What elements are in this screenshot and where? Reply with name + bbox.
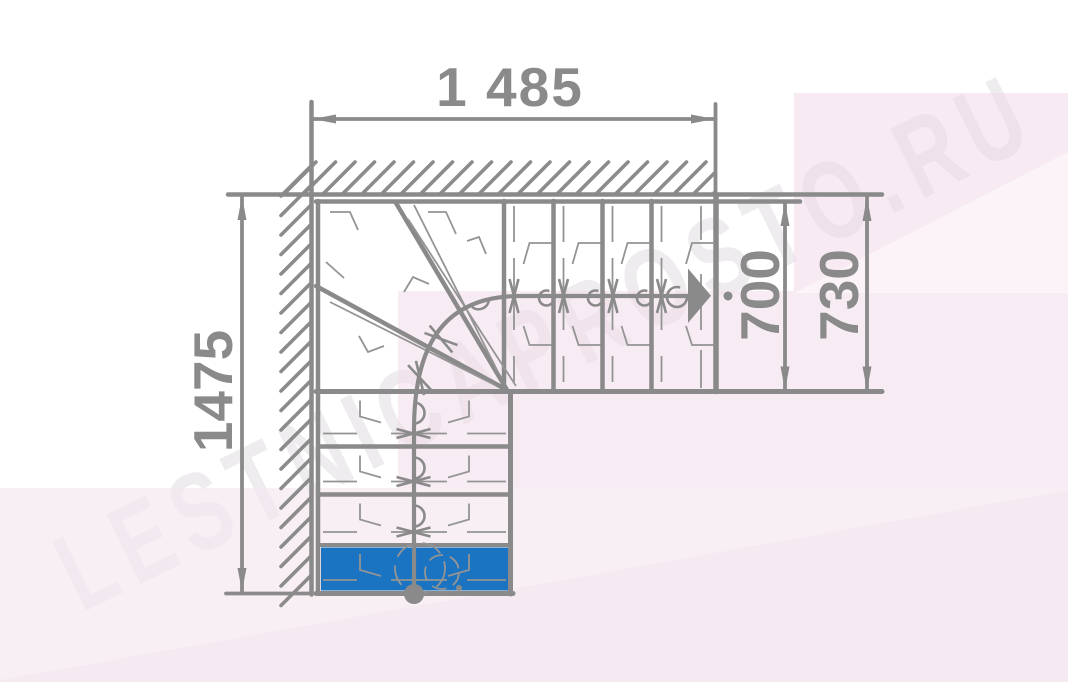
svg-text:730: 730 xyxy=(808,249,870,341)
svg-text:1475: 1475 xyxy=(182,330,244,452)
svg-text:1 485: 1 485 xyxy=(436,56,584,118)
svg-text:700: 700 xyxy=(729,249,791,341)
